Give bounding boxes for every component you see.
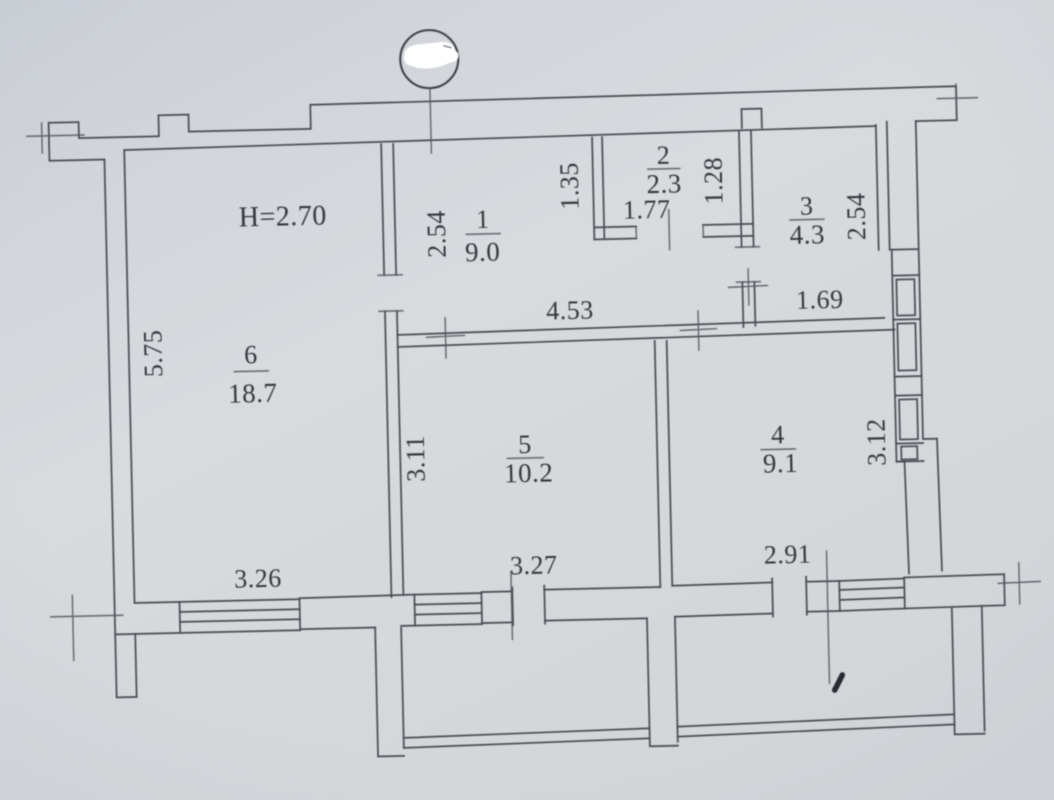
room-1-area: 9.0 xyxy=(465,237,501,268)
room-2-number: 2 xyxy=(656,141,670,170)
dim-room3-height: 2.54 xyxy=(841,192,871,240)
dim-room1-depth: 2.54 xyxy=(422,210,452,258)
room-5-area: 10.2 xyxy=(504,457,554,488)
dim-room2-right-height: 1.28 xyxy=(699,157,729,205)
ceiling-height-label: H=2.70 xyxy=(238,200,327,233)
dim-room2-left-height: 1.35 xyxy=(555,162,585,210)
dim-room2-width: 1.77 xyxy=(623,195,671,225)
room-3-number: 3 xyxy=(800,191,814,220)
room-5-number: 5 xyxy=(518,430,532,459)
room-4-number: 4 xyxy=(771,420,785,449)
dim-room4-width: 2.91 xyxy=(764,540,812,570)
dim-room6-height: 5.75 xyxy=(138,329,168,377)
dim-room5-height: 3.11 xyxy=(401,435,431,482)
room-6-area: 18.7 xyxy=(228,378,278,409)
dim-room4-height: 3.12 xyxy=(862,418,892,466)
room-6-underline xyxy=(234,371,268,372)
dim-room3-bottom-width: 1.69 xyxy=(796,285,844,315)
room-1-underline xyxy=(466,234,500,235)
room-1-number: 1 xyxy=(476,205,490,234)
dim-room5-width: 3.27 xyxy=(510,550,558,580)
room-4-area: 9.1 xyxy=(763,448,799,479)
room-3-area: 4.3 xyxy=(789,219,825,250)
room-6-number: 6 xyxy=(244,340,258,369)
dim-hall-top-width: 4.53 xyxy=(546,295,594,325)
dim-room6-width: 3.26 xyxy=(234,564,282,594)
scanned-floor-plan: H=2.70 6 18.7 1 9.0 2 2.3 3 4.3 5 10.2 4 xyxy=(0,0,1054,800)
